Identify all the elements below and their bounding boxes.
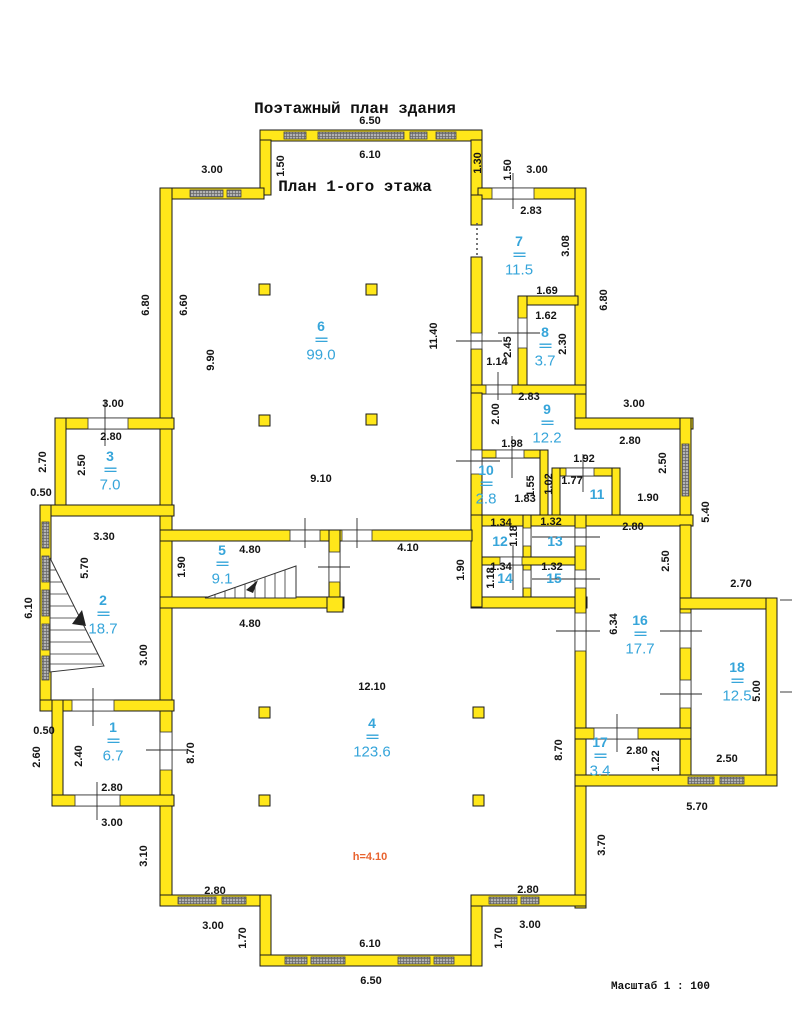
room-number: 6 bbox=[317, 318, 325, 334]
dimension-label: 2.50 bbox=[657, 452, 669, 473]
column bbox=[366, 284, 377, 295]
dimension-label: 3.00 bbox=[201, 164, 222, 176]
column bbox=[259, 284, 270, 295]
dimension-label: 3.10 bbox=[138, 845, 150, 866]
room-label: 13 bbox=[547, 533, 563, 549]
room-divider: == bbox=[539, 339, 552, 353]
dimension-label: 1.90 bbox=[176, 556, 188, 577]
scale-note: Масштаб 1 : 100 Размеры в метрах bbox=[611, 947, 717, 1024]
room-label: 14 bbox=[497, 570, 513, 586]
room-area: 99.0 bbox=[306, 347, 335, 364]
door-opening bbox=[75, 795, 120, 806]
wall bbox=[40, 505, 174, 516]
dimension-label: 1.83 bbox=[514, 493, 535, 505]
staircase-outline bbox=[50, 558, 104, 672]
dimension-label: 6.10 bbox=[359, 938, 380, 950]
room-divider: == bbox=[594, 749, 607, 763]
room-area: 12.2 bbox=[532, 430, 561, 447]
dimension-label: 1.14 bbox=[486, 356, 508, 368]
room-number: 14 bbox=[497, 570, 513, 586]
dimensions-layer: 6.506.103.001.501.301.503.002.833.086.80… bbox=[23, 115, 763, 987]
dimension-label: 1.18 bbox=[485, 567, 497, 588]
window bbox=[178, 897, 216, 904]
dimension-label: 3.00 bbox=[623, 398, 644, 410]
window bbox=[720, 777, 744, 784]
dimension-label: 2.50 bbox=[76, 454, 88, 475]
dimension-label: 6.50 bbox=[359, 115, 380, 127]
room-area: 17.7 bbox=[625, 641, 654, 658]
dimension-label: 0.50 bbox=[33, 725, 54, 737]
dimension-label: 1.98 bbox=[501, 438, 522, 450]
dimension-label: 2.50 bbox=[716, 753, 737, 765]
room-number: 13 bbox=[547, 533, 563, 549]
room-divider: == bbox=[480, 477, 493, 491]
dimension-label: 6.60 bbox=[178, 294, 190, 315]
room-number: 18 bbox=[729, 659, 745, 675]
room-number: 17 bbox=[592, 734, 608, 750]
dimension-label: 4.10 bbox=[397, 542, 418, 554]
dimension-label: 2.45 bbox=[502, 336, 514, 357]
dimension-label: 1.22 bbox=[650, 750, 662, 771]
room-area: 7.0 bbox=[100, 477, 121, 494]
wall bbox=[471, 515, 482, 607]
dimension-label: 2.80 bbox=[204, 885, 225, 897]
window bbox=[42, 656, 49, 680]
room-number: 2 bbox=[99, 592, 107, 608]
window bbox=[410, 132, 427, 139]
room-label: 11 bbox=[590, 486, 605, 502]
room-label: 7==11.5 bbox=[505, 233, 533, 279]
dimension-label: 3.00 bbox=[519, 919, 540, 931]
room-label: 3==7.0 bbox=[100, 448, 121, 494]
room-area: 18.7 bbox=[88, 621, 117, 638]
wall bbox=[471, 195, 482, 225]
room-number: 16 bbox=[632, 612, 648, 628]
dimension-label: 2.60 bbox=[31, 746, 43, 767]
dimension-label: 3.00 bbox=[202, 920, 223, 932]
window bbox=[688, 777, 714, 784]
room-number: 15 bbox=[546, 570, 562, 586]
door-opening bbox=[680, 613, 691, 648]
wall bbox=[471, 597, 587, 608]
room-number: 5 bbox=[218, 542, 226, 558]
window bbox=[190, 190, 223, 197]
dimension-label: 1.02 bbox=[543, 473, 555, 494]
window bbox=[311, 957, 345, 964]
room-area: 3.7 bbox=[535, 353, 556, 370]
room-label: 1==6.7 bbox=[103, 719, 124, 765]
room-area: 123.6 bbox=[353, 744, 391, 761]
dimension-label: 1.70 bbox=[493, 927, 505, 948]
window bbox=[42, 624, 49, 650]
dimension-label: 5.40 bbox=[700, 501, 712, 522]
dimension-label: 6.34 bbox=[608, 612, 620, 634]
dimension-label: 1.62 bbox=[535, 310, 556, 322]
dimension-label: 11.40 bbox=[428, 323, 440, 350]
dimension-label: 3.00 bbox=[101, 817, 122, 829]
window bbox=[42, 556, 49, 582]
wall bbox=[327, 597, 343, 612]
room-label: 6==99.0 bbox=[306, 318, 335, 364]
room-area: 9.1 bbox=[212, 571, 233, 588]
scale-line: Масштаб 1 : 100 bbox=[611, 979, 717, 995]
door-opening bbox=[523, 528, 531, 546]
dimension-label: 2.40 bbox=[73, 745, 85, 766]
dimension-label: 1.50 bbox=[275, 155, 287, 176]
room-label: 18==12.5 bbox=[722, 659, 751, 705]
room-area: 12.5 bbox=[722, 688, 751, 705]
window bbox=[682, 444, 689, 496]
window bbox=[489, 897, 517, 904]
wall bbox=[766, 598, 777, 786]
dimension-label: 1.92 bbox=[573, 453, 594, 465]
window bbox=[521, 897, 539, 904]
dimension-label: 2.00 bbox=[490, 403, 502, 424]
room-divider: == bbox=[731, 674, 744, 688]
dimension-label: 5.70 bbox=[79, 557, 91, 578]
dimension-label: 8.70 bbox=[553, 739, 565, 760]
room-label: 16==17.7 bbox=[625, 612, 654, 658]
dimension-label: 1.77 bbox=[561, 475, 582, 487]
room-label: 8==3.7 bbox=[535, 324, 556, 370]
room-area: 3.4 bbox=[590, 763, 611, 780]
column bbox=[366, 414, 377, 425]
room-area: 6.7 bbox=[103, 748, 124, 765]
dimension-label: 2.70 bbox=[37, 451, 49, 472]
dimension-label: 3.00 bbox=[138, 644, 150, 665]
room-divider: == bbox=[216, 557, 229, 571]
room-number: 9 bbox=[543, 401, 551, 417]
dimension-label: 1.30 bbox=[472, 152, 484, 173]
door-opening bbox=[523, 570, 531, 588]
wall bbox=[160, 597, 344, 608]
dimension-label: 3.00 bbox=[526, 164, 547, 176]
dimension-label: 6.10 bbox=[23, 597, 35, 618]
window bbox=[284, 132, 306, 139]
door-opening bbox=[486, 385, 512, 394]
dimension-label: 9.90 bbox=[205, 349, 217, 370]
ceiling-height-label: h=4.10 bbox=[353, 851, 388, 863]
room-label: 12 bbox=[492, 533, 508, 549]
room-number: 7 bbox=[515, 233, 523, 249]
window bbox=[42, 522, 49, 548]
dimension-label: 0.50 bbox=[30, 487, 51, 499]
dimension-label: 2.80 bbox=[101, 782, 122, 794]
dimension-label: 2.83 bbox=[518, 391, 539, 403]
dimension-label: 12.10 bbox=[358, 681, 386, 693]
column bbox=[259, 795, 270, 806]
window bbox=[222, 897, 246, 904]
dimension-label: 5.70 bbox=[686, 801, 707, 813]
dimension-label: 2.83 bbox=[520, 205, 541, 217]
room-number: 11 bbox=[590, 486, 605, 502]
room-divider: == bbox=[541, 416, 554, 430]
column bbox=[473, 707, 484, 718]
room-divider: == bbox=[366, 730, 379, 744]
room-divider: == bbox=[513, 248, 526, 262]
window bbox=[227, 190, 241, 197]
wall bbox=[575, 418, 693, 429]
dimension-label: 1.90 bbox=[637, 492, 658, 504]
dimension-label: 1.50 bbox=[502, 159, 514, 180]
wall bbox=[680, 598, 777, 609]
dimension-label: 1.32 bbox=[540, 516, 561, 528]
window bbox=[398, 957, 430, 964]
dimension-label: 2.80 bbox=[626, 745, 647, 757]
floor-plan-drawing: 6.506.103.001.501.301.503.002.833.086.80… bbox=[0, 0, 792, 1024]
dimension-label: 2.80 bbox=[622, 521, 643, 533]
windows-layer bbox=[42, 132, 744, 964]
room-number: 1 bbox=[109, 719, 117, 735]
dimension-label: 3.70 bbox=[596, 834, 608, 855]
dimension-label: 6.50 bbox=[360, 975, 381, 987]
dimension-label: 1.90 bbox=[455, 559, 467, 580]
dimension-label: 3.08 bbox=[560, 235, 572, 256]
staircase bbox=[50, 558, 104, 672]
dimension-label: 1.18 bbox=[508, 525, 520, 546]
room-divider: == bbox=[97, 607, 110, 621]
window bbox=[285, 957, 307, 964]
room-number: 4 bbox=[368, 715, 376, 731]
room-divider: == bbox=[104, 463, 117, 477]
dimension-label: 2.30 bbox=[557, 333, 569, 354]
room-area: 2.8 bbox=[476, 491, 497, 508]
room-divider: == bbox=[315, 333, 328, 347]
wall bbox=[260, 140, 271, 195]
height-layer: h=4.10 bbox=[353, 851, 388, 863]
room-divider: == bbox=[107, 734, 120, 748]
wall bbox=[52, 700, 63, 806]
column bbox=[259, 415, 270, 426]
room-number: 12 bbox=[492, 533, 508, 549]
room-label: 17==3.4 bbox=[590, 734, 611, 780]
dimension-label: 4.80 bbox=[239, 618, 260, 630]
dimension-label: 6.10 bbox=[359, 149, 380, 161]
door-opening bbox=[160, 732, 172, 770]
dimension-label: 8.70 bbox=[185, 742, 197, 763]
window bbox=[436, 132, 456, 139]
wall bbox=[680, 525, 691, 785]
dimension-label: 5.00 bbox=[751, 680, 763, 701]
room-label: 5==9.1 bbox=[212, 542, 233, 588]
room-number: 3 bbox=[106, 448, 114, 464]
room-label: 15 bbox=[546, 570, 562, 586]
dimension-label: 1.70 bbox=[237, 927, 249, 948]
dimension-label: 1.69 bbox=[536, 285, 557, 297]
room-label: 4==123.6 bbox=[353, 715, 391, 761]
dimension-label: 6.80 bbox=[140, 294, 152, 315]
door-opening bbox=[575, 613, 586, 651]
room-area: 11.5 bbox=[505, 262, 533, 279]
dimension-label: 2.80 bbox=[619, 435, 640, 447]
room-number: 10 bbox=[478, 462, 494, 478]
dimension-label: 2.80 bbox=[100, 431, 121, 443]
column bbox=[473, 795, 484, 806]
window bbox=[434, 957, 454, 964]
room-number: 8 bbox=[541, 324, 549, 340]
room-label: 2==18.7 bbox=[88, 592, 117, 638]
dimension-label: 2.50 bbox=[660, 550, 672, 571]
window bbox=[42, 590, 49, 616]
wall bbox=[471, 257, 482, 335]
dimension-label: 3.00 bbox=[102, 398, 123, 410]
door-opening bbox=[88, 418, 128, 429]
floor-plan-page: Поэтажный план здания План 1-ого этажа 6… bbox=[0, 0, 792, 1024]
room-label: 9==12.2 bbox=[532, 401, 561, 447]
column bbox=[259, 707, 270, 718]
window bbox=[318, 132, 404, 139]
dimension-label: 9.10 bbox=[310, 473, 331, 485]
wall bbox=[55, 418, 66, 516]
dimension-label: 6.80 bbox=[598, 289, 610, 310]
room-divider: == bbox=[634, 627, 647, 641]
dimension-label: 3.30 bbox=[93, 531, 114, 543]
dimension-label: 4.80 bbox=[239, 544, 260, 556]
door-opening bbox=[496, 450, 524, 458]
dimension-label: 2.80 bbox=[517, 884, 538, 896]
wall bbox=[471, 557, 586, 565]
dimension-label: 2.70 bbox=[730, 578, 751, 590]
